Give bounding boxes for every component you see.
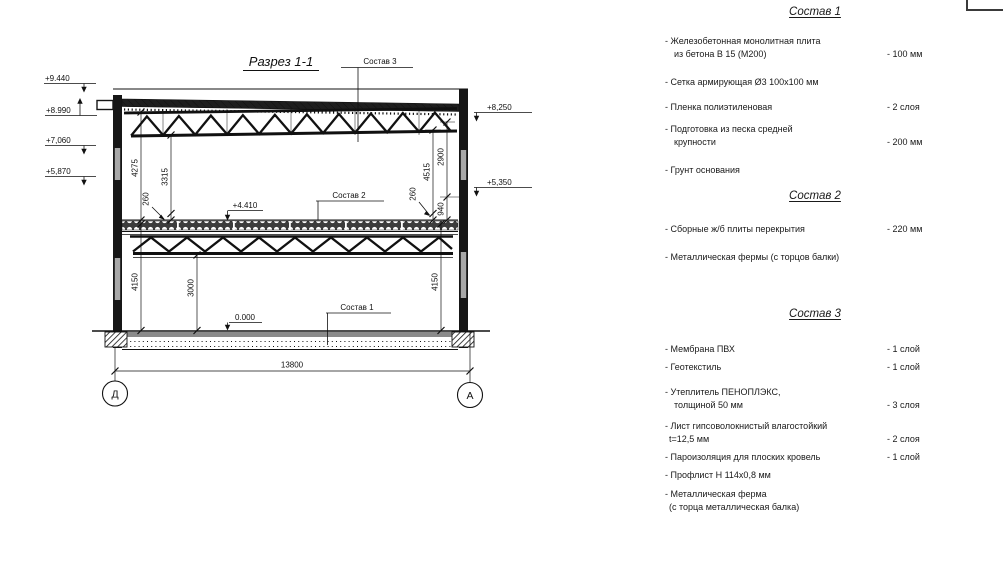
dim-4150-right: 4150 [431,273,440,291]
item-text: - Пленка полиэтиленовая [665,101,772,114]
level-4410-label: +4.410 [233,201,258,210]
sheet-frame-corner [966,0,1003,11]
item-text: - Подготовка из песка средней [665,123,793,136]
list-item: - Геотекстиль - 1 слой [665,361,721,374]
callout-3-label: Состав 3 [363,57,397,66]
section-drawing: Разрез 1-1 [0,0,560,430]
item-value: - 1 слой [887,361,920,374]
down-arrow-icon [474,191,479,197]
item-text: - Пароизоляция для плоских кровель [665,451,820,464]
dim-2900: 2900 [437,148,446,166]
item-text: - Геотекстиль [665,361,721,374]
item-text: - Утеплитель ПЕНОПЛЭКС, [665,386,781,399]
level-9440-label: +9.440 [45,74,70,83]
level-7060-label: +7,060 [46,136,71,145]
item-text2: толщиной 50 мм [665,399,781,412]
section3-title: Состав 3 [665,308,965,320]
list-item: - Сборные ж/б плиты перекрытия - 220 мм [665,223,805,236]
list-item: - Металлическая фермы (с торцов балки) [665,251,839,264]
list-item: - Пароизоляция для плоских кровель - 1 с… [665,451,820,464]
list-item: - Железобетонная монолитная плита из бет… [665,35,821,61]
item-text2: из бетона В 15 (М200) [665,48,821,61]
item-value: - 1 слой [887,343,920,356]
dim-4515: 4515 [423,163,432,181]
levels-left: +9.440 +8.990 +7,060 +5,870 [44,74,97,186]
callout-sostav-2: Состав 2 [316,191,384,220]
callout-2-label: Состав 2 [332,191,366,200]
axis-right-label: А [466,390,473,402]
item-text: - Профлист Н 114х0,8 мм [665,469,771,482]
list-item: - Сетка армирующая Ø3 100х100 мм [665,76,819,89]
down-arrow-icon [474,116,479,122]
down-arrow-icon [81,87,86,93]
item-value: - 2 слоя [887,101,920,114]
down-arrow-icon [225,325,230,331]
floor-truss [130,237,453,258]
item-text: - Железобетонная монолитная плита [665,35,821,48]
item-text2: t=12,5 мм [665,433,827,446]
list-item: - Пленка полиэтиленовая - 2 слоя [665,101,772,114]
dim-13800: 13800 [281,361,304,370]
item-text: - Мембрана ПВХ [665,343,735,356]
ground-slab [92,331,490,350]
level-0000-label: 0.000 [235,313,256,322]
building-walls [97,89,468,348]
item-text2: (с торца металлическая балка) [665,501,799,514]
item-text: - Сетка армирующая Ø3 100х100 мм [665,76,819,89]
dim-4150-left: 4150 [131,273,140,291]
item-text: - Металлическая фермы (с торцов балки) [665,251,839,264]
dim-260-left: 260 [142,192,151,206]
section2-title: Состав 2 [665,190,965,202]
dim-overall: 13800 [112,361,474,375]
list-item: - Подготовка из песка средней крупности … [665,123,793,149]
item-text2: крупности [665,136,793,149]
item-value: - 100 мм [887,48,922,61]
level-5350-label: +5,350 [487,178,512,187]
level-5870-label: +5,870 [46,167,71,176]
level-8990-label: +8.990 [46,106,71,115]
item-text: - Сборные ж/б плиты перекрытия [665,223,805,236]
item-text: - Грунт основания [665,164,740,177]
list-item: - Лист гипсоволокнистый влагостойкий t=1… [665,420,827,446]
floor-slab [122,220,458,235]
item-value: - 1 слой [887,451,920,464]
item-value: - 220 мм [887,223,922,236]
item-text: - Лист гипсоволокнистый влагостойкий [665,420,827,433]
levels-right: +8,250 +5,350 [474,103,532,197]
drawing-title-text: Разрез 1-1 [249,54,313,69]
list-item: - Профлист Н 114х0,8 мм [665,469,771,482]
down-arrow-icon [81,149,86,155]
dim-4275: 4275 [131,159,140,177]
dims-upper-right: 4515 260 2900 940 [409,119,460,224]
item-value: - 3 слоя [887,399,920,412]
foundation-left [105,332,127,347]
item-value: - 2 слоя [887,433,920,446]
dim-3315: 3315 [161,168,170,186]
dim-260-right: 260 [409,187,418,201]
list-item: - Мембрана ПВХ - 1 слой [665,343,735,356]
drawing-title: Разрез 1-1 [243,54,319,71]
up-arrow-icon [77,98,82,104]
item-value: - 200 мм [887,136,922,149]
list-item: - Утеплитель ПЕНОПЛЭКС, толщиной 50 мм -… [665,386,781,412]
list-item: - Металлическая ферма (с торца металличе… [665,488,799,514]
down-arrow-icon [81,180,86,186]
axis-left-label: Д [111,389,118,401]
section1-title: Состав 1 [665,6,965,18]
level-4410: +4.410 [225,201,263,221]
list-item: - Грунт основания [665,164,740,177]
level-0000: 0.000 [225,313,262,331]
dim-940: 940 [437,202,446,216]
callout-1-label: Состав 1 [340,303,374,312]
item-text: - Металлическая ферма [665,488,799,501]
dim-3000: 3000 [187,279,196,297]
foundation-right [452,332,474,347]
callout-sostav-1: Состав 1 [326,303,391,345]
level-8250-label: +8,250 [487,103,512,112]
